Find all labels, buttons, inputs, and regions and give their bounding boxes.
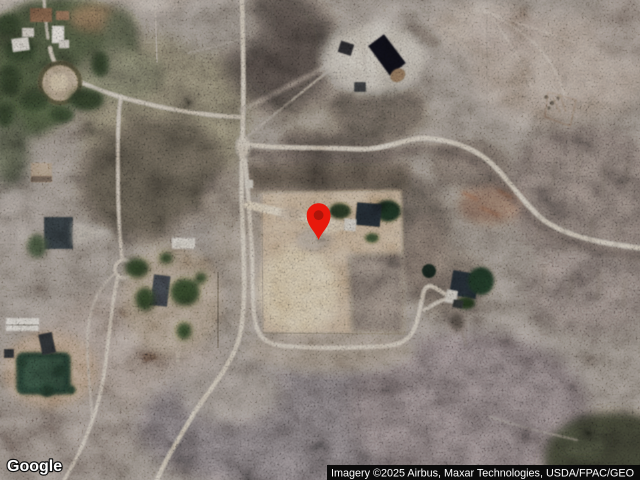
svg-text:Google: Google [7,458,62,475]
svg-text:Imagery ©2025 Airbus, Maxar Te: Imagery ©2025 Airbus, Maxar Technologies… [331,468,634,480]
